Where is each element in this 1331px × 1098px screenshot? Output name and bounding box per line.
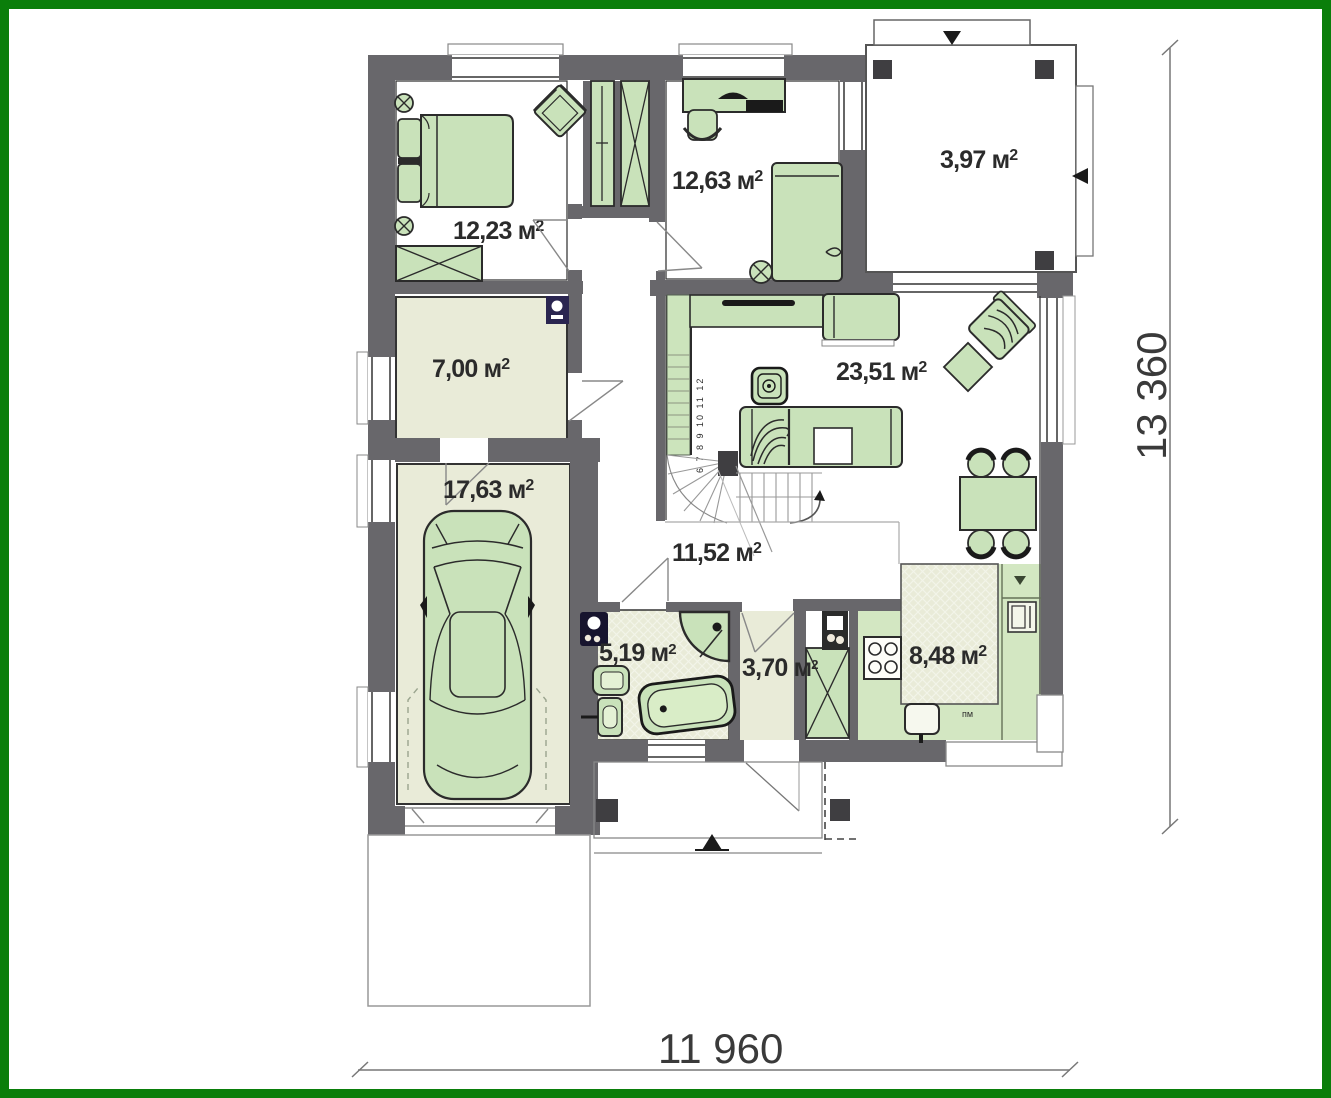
svg-text:3,70 м2: 3,70 м2 xyxy=(742,654,818,682)
svg-text:11 960: 11 960 xyxy=(658,1025,783,1072)
svg-text:8,48 м2: 8,48 м2 xyxy=(909,642,987,670)
svg-text:12,23 м2: 12,23 м2 xyxy=(453,217,544,245)
svg-text:17,63 м2: 17,63 м2 xyxy=(443,476,534,504)
svg-text:13 360: 13 360 xyxy=(1128,332,1175,460)
svg-text:7,00 м2: 7,00 м2 xyxy=(432,355,510,383)
svg-text:23,51 м2: 23,51 м2 xyxy=(836,358,927,386)
svg-text:11,52 м2: 11,52 м2 xyxy=(672,539,762,567)
svg-text:3,97 м2: 3,97 м2 xyxy=(940,146,1018,174)
svg-text:пм: пм xyxy=(962,709,973,719)
svg-text:12,63 м2: 12,63 м2 xyxy=(672,167,763,195)
svg-text:5,19 м2: 5,19 м2 xyxy=(599,639,676,667)
